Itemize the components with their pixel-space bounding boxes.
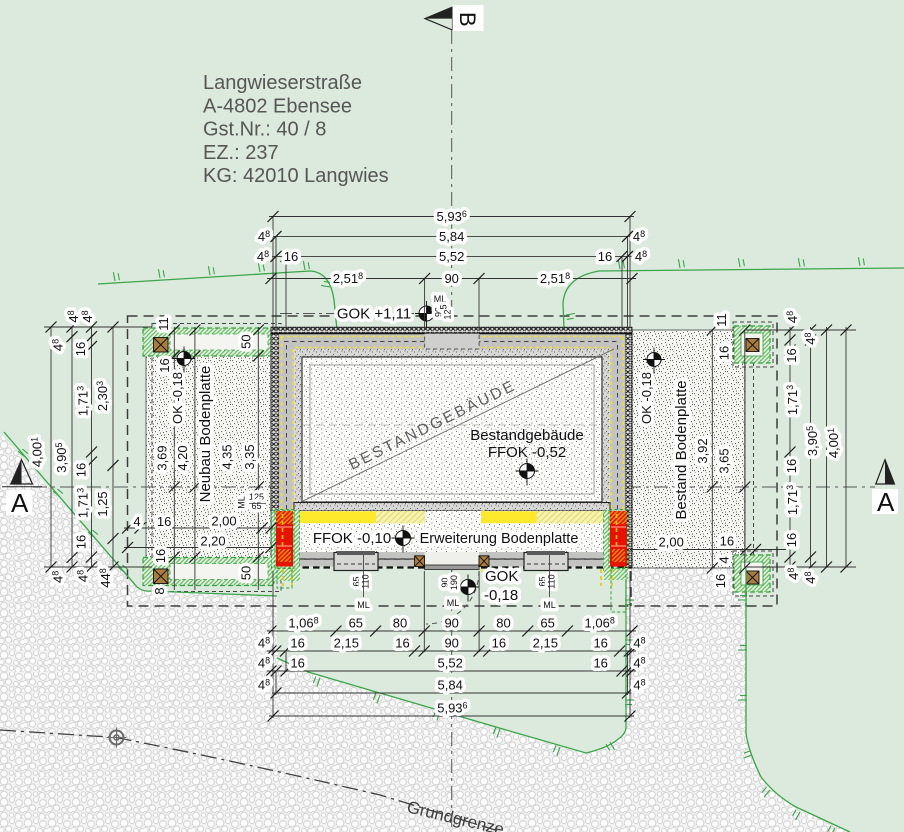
svg-text:3,65: 3,65: [717, 448, 732, 473]
svg-text:OK -0,18: OK -0,18: [170, 372, 185, 424]
svg-text:16: 16: [153, 549, 168, 563]
svg-text:110: 110: [361, 574, 371, 588]
svg-text:16: 16: [784, 459, 799, 473]
svg-text:4,20: 4,20: [175, 445, 190, 470]
svg-text:50: 50: [239, 334, 254, 348]
svg-text:B: B: [455, 12, 480, 27]
svg-text:16: 16: [713, 574, 728, 588]
svg-text:50: 50: [239, 566, 254, 580]
svg-text:5,52: 5,52: [439, 249, 464, 264]
svg-text:16: 16: [157, 514, 171, 529]
svg-text:16: 16: [290, 636, 304, 651]
svg-text:5,52: 5,52: [438, 656, 463, 671]
svg-text:ML: ML: [237, 496, 247, 509]
svg-text:3,92: 3,92: [695, 438, 710, 463]
svg-text:Langwieserstraße: Langwieserstraße: [203, 72, 362, 94]
svg-text:2,00: 2,00: [659, 535, 684, 550]
svg-text:16: 16: [157, 358, 172, 372]
svg-text:2,00: 2,00: [211, 514, 236, 529]
svg-text:11: 11: [156, 317, 171, 331]
svg-text:2,20: 2,20: [200, 534, 225, 549]
svg-text:4: 4: [717, 556, 732, 563]
svg-text:GOK: GOK: [485, 568, 518, 585]
svg-text:65: 65: [251, 501, 261, 511]
svg-text:5,84: 5,84: [439, 229, 464, 244]
svg-text:16: 16: [492, 636, 506, 651]
svg-text:ML: ML: [357, 600, 370, 610]
svg-text:16: 16: [395, 636, 409, 651]
svg-text:16: 16: [784, 533, 799, 547]
svg-text:1,25: 1,25: [95, 491, 110, 516]
svg-text:Neubau Bodenplatte: Neubau Bodenplatte: [197, 366, 214, 503]
svg-text:A: A: [11, 488, 29, 518]
svg-text:16: 16: [284, 249, 298, 264]
svg-text:-0,18: -0,18: [484, 587, 518, 604]
svg-text:16: 16: [717, 346, 732, 360]
svg-text:4,35: 4,35: [220, 444, 235, 469]
svg-text:190: 190: [449, 575, 459, 590]
svg-text:KG: 42010 Langwies: KG: 42010 Langwies: [203, 165, 389, 187]
svg-text:90: 90: [444, 271, 458, 286]
svg-text:Bestandgebäude: Bestandgebäude: [470, 427, 583, 444]
svg-text:16: 16: [598, 249, 612, 264]
svg-text:16: 16: [593, 636, 607, 651]
svg-text:16: 16: [74, 535, 89, 549]
svg-text:3,35: 3,35: [242, 444, 257, 469]
svg-text:16: 16: [720, 534, 734, 549]
svg-text:2,15: 2,15: [334, 636, 359, 651]
svg-text:11: 11: [714, 313, 729, 327]
svg-text:Gst.Nr.: 40 / 8: Gst.Nr.: 40 / 8: [203, 119, 326, 141]
svg-text:ML: ML: [447, 598, 460, 608]
svg-text:90: 90: [444, 616, 458, 631]
svg-text:GOK +1,11: GOK +1,11: [337, 306, 411, 323]
svg-text:110: 110: [547, 574, 557, 588]
svg-text:FFOK -0,10: FFOK -0,10: [313, 530, 391, 547]
svg-text:16: 16: [73, 342, 88, 356]
svg-text:ML: ML: [543, 600, 556, 610]
svg-text:2,15: 2,15: [533, 636, 558, 651]
svg-text:A: A: [877, 487, 895, 517]
svg-text:5,84: 5,84: [438, 678, 463, 693]
svg-text:Bestand Bodenplatte: Bestand Bodenplatte: [673, 380, 690, 519]
svg-text:90: 90: [444, 636, 458, 651]
svg-text:ML: ML: [434, 294, 447, 304]
svg-text:A-4802 Ebensee: A-4802 Ebensee: [203, 95, 352, 117]
svg-text:16: 16: [74, 463, 89, 477]
svg-text:16: 16: [593, 656, 607, 671]
svg-text:80: 80: [393, 616, 407, 631]
svg-text:65: 65: [349, 616, 363, 631]
svg-text:EZ.: 237: EZ.: 237: [203, 142, 279, 164]
svg-text:OK -0,18: OK -0,18: [639, 372, 654, 424]
svg-text:8: 8: [152, 587, 167, 594]
svg-text:3,69: 3,69: [155, 445, 170, 470]
svg-text:65: 65: [540, 616, 554, 631]
svg-text:4: 4: [133, 514, 140, 529]
svg-text:80: 80: [496, 616, 510, 631]
svg-text:16: 16: [784, 348, 799, 362]
svg-text:16: 16: [290, 656, 304, 671]
svg-text:Erweiterung Bodenplatte: Erweiterung Bodenplatte: [420, 531, 579, 547]
svg-text:FFOK -0,52: FFOK -0,52: [488, 444, 566, 461]
